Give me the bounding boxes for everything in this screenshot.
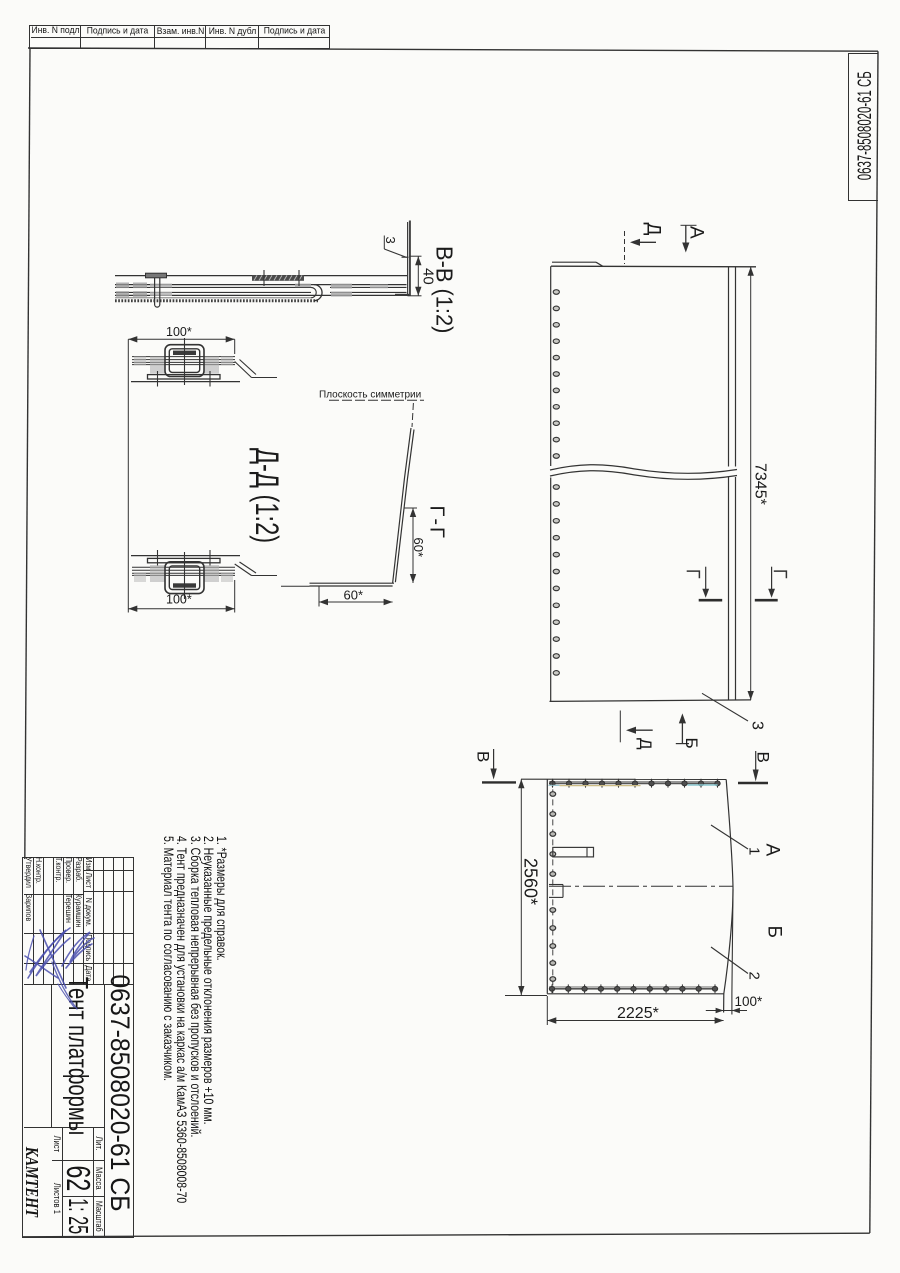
svg-text:Плоскость симметрии: Плоскость симметрии xyxy=(319,390,421,401)
svg-text:2560*: 2560* xyxy=(521,858,541,905)
svg-text:В: В xyxy=(474,751,493,762)
svg-text:Б: Б xyxy=(682,738,701,749)
svg-text:60*: 60* xyxy=(411,538,426,558)
svg-text:Д: Д xyxy=(636,738,655,750)
svg-text:100*: 100* xyxy=(166,593,192,607)
svg-text:2225*: 2225* xyxy=(617,1005,659,1022)
svg-text:Б: Б xyxy=(764,926,785,938)
svg-text:3: 3 xyxy=(748,721,765,730)
svg-text:100*: 100* xyxy=(166,325,192,339)
svg-text:А: А xyxy=(686,226,707,239)
svg-text:В: В xyxy=(754,752,773,763)
svg-text:А: А xyxy=(762,844,783,857)
svg-text:100*: 100* xyxy=(735,994,764,1009)
svg-text:7345*: 7345* xyxy=(752,463,769,505)
svg-text:1: 1 xyxy=(746,847,763,855)
svg-text:2: 2 xyxy=(746,972,763,980)
svg-text:60*: 60* xyxy=(344,588,364,603)
svg-text:Г-Г: Г-Г xyxy=(426,506,448,540)
svg-text:В-В (1:2): В-В (1:2) xyxy=(431,246,457,333)
svg-text:Д: Д xyxy=(643,223,664,236)
svg-text:3: 3 xyxy=(383,237,398,244)
svg-text:Д-Д (1:2): Д-Д (1:2) xyxy=(249,448,284,543)
